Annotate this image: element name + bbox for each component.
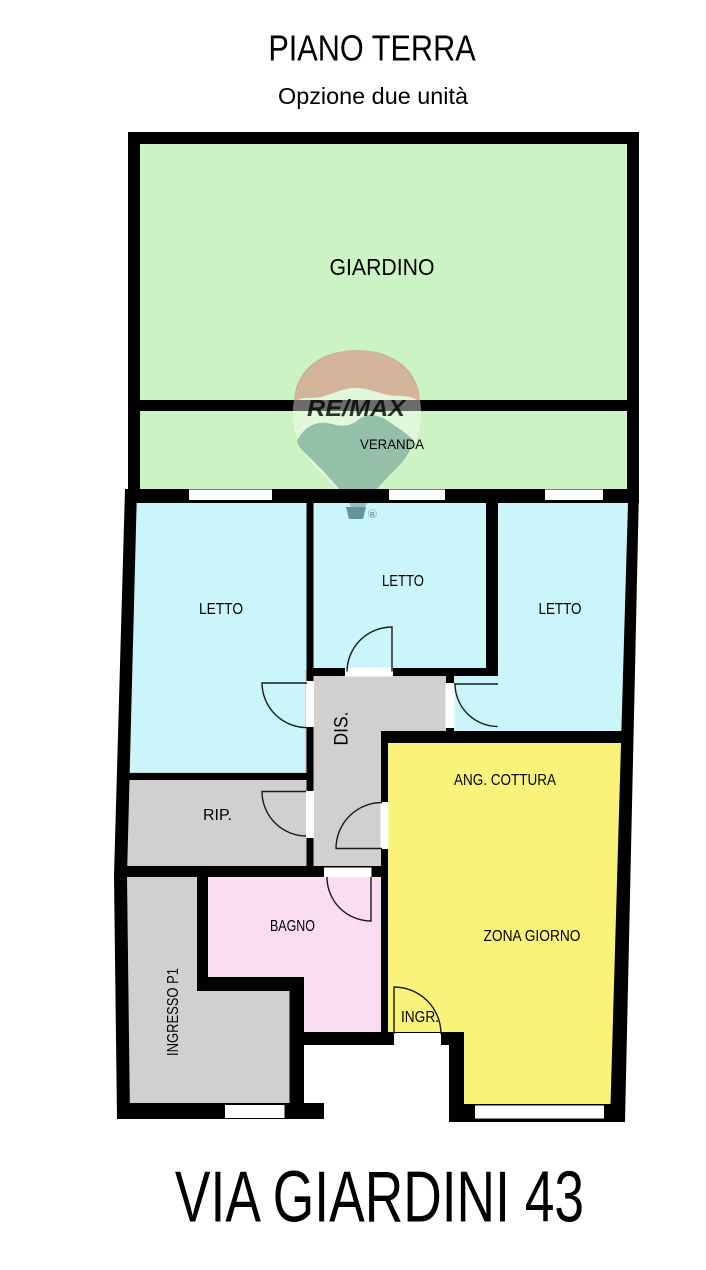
svg-text:RE/MAX: RE/MAX (307, 395, 407, 421)
svg-text:ANG. COTTURA: ANG. COTTURA (454, 772, 556, 789)
svg-text:GIARDINO: GIARDINO (330, 254, 435, 280)
svg-text:BAGNO: BAGNO (270, 918, 315, 935)
svg-text:DIS.: DIS. (331, 712, 353, 746)
svg-text:LETTO: LETTO (382, 573, 424, 590)
svg-text:INGRESSO P1: INGRESSO P1 (165, 968, 182, 1056)
svg-text:VERANDA: VERANDA (360, 436, 425, 452)
svg-text:RIP.: RIP. (203, 807, 232, 824)
svg-text:LETTO: LETTO (539, 601, 582, 618)
svg-text:ZONA GIORNO: ZONA GIORNO (484, 928, 581, 945)
svg-text:LETTO: LETTO (199, 601, 243, 618)
svg-text:INGR.: INGR. (401, 1009, 439, 1026)
svg-text:R: R (370, 512, 375, 519)
svg-text:Opzione due unità: Opzione due unità (278, 83, 468, 109)
svg-text:VIA GIARDINI 43: VIA GIARDINI 43 (175, 1158, 584, 1238)
svg-text:PIANO TERRA: PIANO TERRA (268, 29, 476, 69)
